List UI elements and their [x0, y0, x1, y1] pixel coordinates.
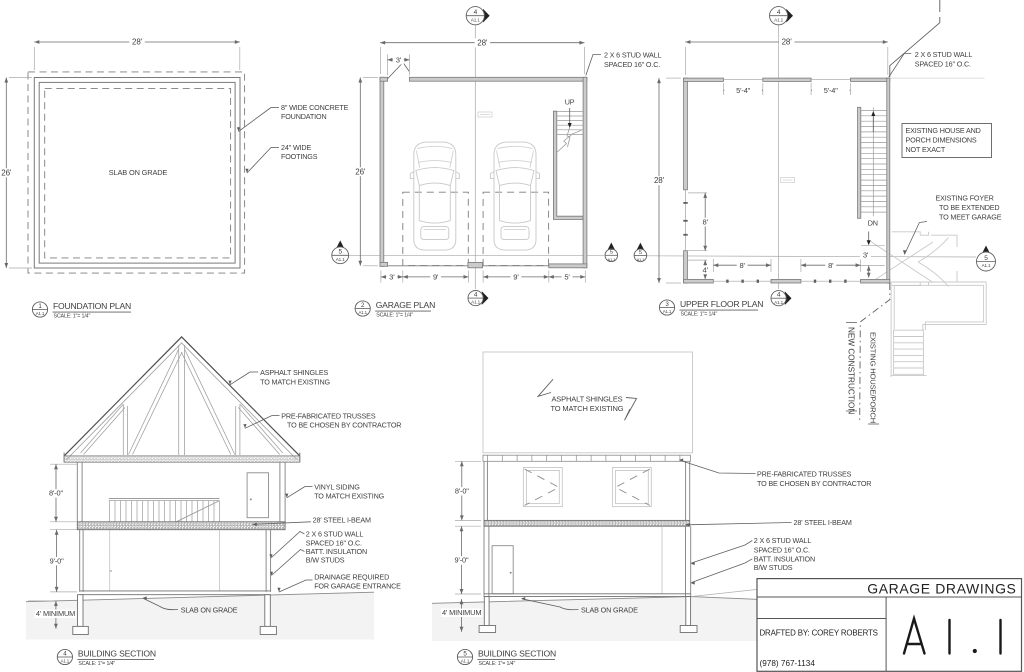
svg-text:28': 28': [132, 38, 143, 47]
svg-text:DN: DN: [868, 218, 878, 227]
svg-text:SLAB ON GRADE: SLAB ON GRADE: [109, 168, 168, 177]
svg-text:A1.1: A1.1: [61, 659, 70, 664]
svg-text:EXISTING HOUSE/PORCH: EXISTING HOUSE/PORCH: [869, 332, 878, 423]
svg-text:TO MATCH EXISTING: TO MATCH EXISTING: [260, 377, 330, 386]
svg-text:2 X 6 STUD WALL: 2 X 6 STUD WALL: [306, 529, 364, 538]
svg-text:GARAGE DRAWINGS: GARAGE DRAWINGS: [867, 581, 1016, 597]
svg-text:9'-0": 9'-0": [455, 556, 469, 565]
svg-text:DRAFTED BY: COREY ROBERTS: DRAFTED BY: COREY ROBERTS: [760, 629, 878, 638]
svg-text:3': 3': [396, 55, 402, 64]
svg-text:A1.1: A1.1: [663, 309, 672, 314]
svg-text:PRE-FABRICATED TRUSSES: PRE-FABRICATED TRUSSES: [757, 470, 852, 479]
svg-text:NOT EXACT: NOT EXACT: [906, 145, 946, 154]
svg-text:BUILDING SECTION: BUILDING SECTION: [78, 649, 156, 659]
svg-text:3': 3': [389, 273, 395, 282]
svg-text:EXISTING HOUSE AND: EXISTING HOUSE AND: [906, 126, 981, 135]
svg-text:5: 5: [639, 250, 642, 256]
svg-text:8': 8': [739, 261, 745, 270]
svg-text:4: 4: [777, 9, 781, 16]
svg-text:5: 5: [610, 250, 613, 256]
svg-text:4: 4: [777, 292, 781, 299]
svg-text:B/W STUDS: B/W STUDS: [306, 555, 345, 564]
svg-text:28' STEEL I-BEAM: 28' STEEL I-BEAM: [313, 515, 371, 524]
svg-text:5'-4": 5'-4": [736, 86, 750, 95]
svg-text:TO BE EXTENDED: TO BE EXTENDED: [939, 203, 999, 212]
svg-text:4: 4: [474, 9, 478, 16]
svg-text:A1.1: A1.1: [982, 263, 991, 268]
svg-text:A1.1: A1.1: [336, 257, 345, 262]
svg-text:A1.1: A1.1: [774, 17, 783, 22]
svg-text:FOR GARAGE ENTRANCE: FOR GARAGE ENTRANCE: [314, 581, 401, 590]
svg-text:A1.1: A1.1: [461, 659, 470, 664]
svg-text:9': 9': [513, 273, 519, 282]
svg-text:9'-0": 9'-0": [50, 556, 64, 565]
svg-text:8'-0": 8'-0": [455, 486, 469, 495]
svg-text:26': 26': [1, 168, 12, 177]
svg-text:8'-0": 8'-0": [49, 489, 63, 498]
svg-text:EXISTING FOYER: EXISTING FOYER: [936, 194, 994, 203]
svg-text:SCALE: 1"= 1/4": SCALE: 1"= 1/4": [78, 661, 115, 667]
svg-text:SCALE: 1"= 1/4": SCALE: 1"= 1/4": [681, 312, 718, 318]
svg-text:FOOTINGS: FOOTINGS: [281, 152, 318, 161]
svg-text:UPPER FLOOR PLAN: UPPER FLOOR PLAN: [680, 299, 763, 309]
svg-text:GARAGE PLAN: GARAGE PLAN: [376, 300, 435, 310]
svg-text:SCALE: 1"= 1/4": SCALE: 1"= 1/4": [479, 661, 516, 667]
svg-text:DRAINAGE REQUIRED: DRAINAGE REQUIRED: [314, 572, 389, 581]
svg-text:B/W STUDS: B/W STUDS: [754, 563, 793, 572]
svg-text:5: 5: [984, 255, 988, 262]
svg-text:PRE-FABRICATED TRUSSES: PRE-FABRICATED TRUSSES: [281, 412, 376, 421]
svg-text:ASPHALT SHINGLES: ASPHALT SHINGLES: [260, 368, 328, 377]
svg-text:TO BE CHOSEN BY CONTRACTOR: TO BE CHOSEN BY CONTRACTOR: [757, 479, 871, 488]
svg-text:TO BE CHOSEN BY CONTRACTOR: TO BE CHOSEN BY CONTRACTOR: [287, 421, 401, 430]
svg-text:SPACED 16" O.C.: SPACED 16" O.C.: [915, 60, 971, 69]
svg-text:(978) 767-1134: (978) 767-1134: [760, 659, 816, 668]
svg-text:2 X 6 STUD WALL: 2 X 6 STUD WALL: [604, 51, 662, 60]
svg-text:ASPHALT SHINGLES: ASPHALT SHINGLES: [551, 395, 622, 404]
svg-text:26': 26': [355, 167, 366, 176]
svg-text:A1.1: A1.1: [637, 257, 646, 262]
svg-text:2 X 6 STUD WALL: 2 X 6 STUD WALL: [754, 536, 812, 545]
svg-text:SCALE: 1"= 1/4": SCALE: 1"= 1/4": [376, 313, 413, 319]
svg-text:4': 4': [703, 265, 709, 274]
svg-text:FOUNDATION: FOUNDATION: [281, 112, 326, 121]
svg-text:4' MINIMUM: 4' MINIMUM: [36, 609, 75, 618]
svg-text:28': 28': [654, 176, 665, 185]
svg-text:SLAB ON GRADE: SLAB ON GRADE: [181, 605, 238, 614]
svg-text:5'-4": 5'-4": [824, 86, 838, 95]
svg-text:4: 4: [474, 292, 478, 299]
svg-text:UP: UP: [565, 97, 575, 106]
svg-text:8" WIDE CONCRETE: 8" WIDE CONCRETE: [281, 103, 349, 112]
svg-text:8': 8': [703, 217, 709, 226]
svg-text:FOUNDATION PLAN: FOUNDATION PLAN: [53, 301, 131, 311]
svg-text:A1.1: A1.1: [471, 300, 480, 305]
svg-text:TO MATCH EXISTING: TO MATCH EXISTING: [314, 491, 384, 500]
svg-text:NEW CONSTRUCTION: NEW CONSTRUCTION: [847, 327, 856, 414]
svg-text:9': 9': [433, 273, 439, 282]
svg-text:A1.1: A1.1: [607, 257, 616, 262]
svg-text:3': 3': [863, 251, 869, 260]
svg-text:5': 5': [564, 273, 570, 282]
svg-text:8': 8': [828, 261, 834, 270]
svg-text:A1.1: A1.1: [36, 311, 45, 316]
svg-text:28': 28': [477, 38, 488, 47]
svg-text:28' STEEL I-BEAM: 28' STEEL I-BEAM: [794, 518, 852, 527]
svg-text:SCALE: 1"= 1/4": SCALE: 1"= 1/4": [54, 314, 91, 320]
svg-text:4' MINIMUM: 4' MINIMUM: [442, 608, 481, 617]
svg-text:28': 28': [782, 38, 793, 47]
svg-text:SPACED 16" O.C.: SPACED 16" O.C.: [604, 60, 660, 69]
svg-text:TO MATCH EXISTING: TO MATCH EXISTING: [550, 404, 623, 413]
svg-text:BUILDING SECTION: BUILDING SECTION: [478, 649, 556, 659]
svg-text:TO MEET GARAGE: TO MEET GARAGE: [939, 213, 1002, 222]
svg-text:SPACED 16" O.C.: SPACED 16" O.C.: [754, 546, 810, 555]
svg-text:VINYL SIDING: VINYL SIDING: [314, 482, 360, 491]
svg-text:SLAB ON GRADE: SLAB ON GRADE: [581, 605, 638, 614]
svg-text:24" WIDE: 24" WIDE: [281, 143, 311, 152]
svg-text:5: 5: [338, 249, 342, 256]
svg-text:2 X 6 STUD WALL: 2 X 6 STUD WALL: [915, 50, 973, 59]
svg-text:A1.1: A1.1: [358, 310, 367, 315]
svg-text:PORCH DIMENSIONS: PORCH DIMENSIONS: [906, 136, 977, 145]
svg-text:A1.1: A1.1: [471, 17, 480, 22]
svg-text:A1.1: A1.1: [774, 300, 783, 305]
